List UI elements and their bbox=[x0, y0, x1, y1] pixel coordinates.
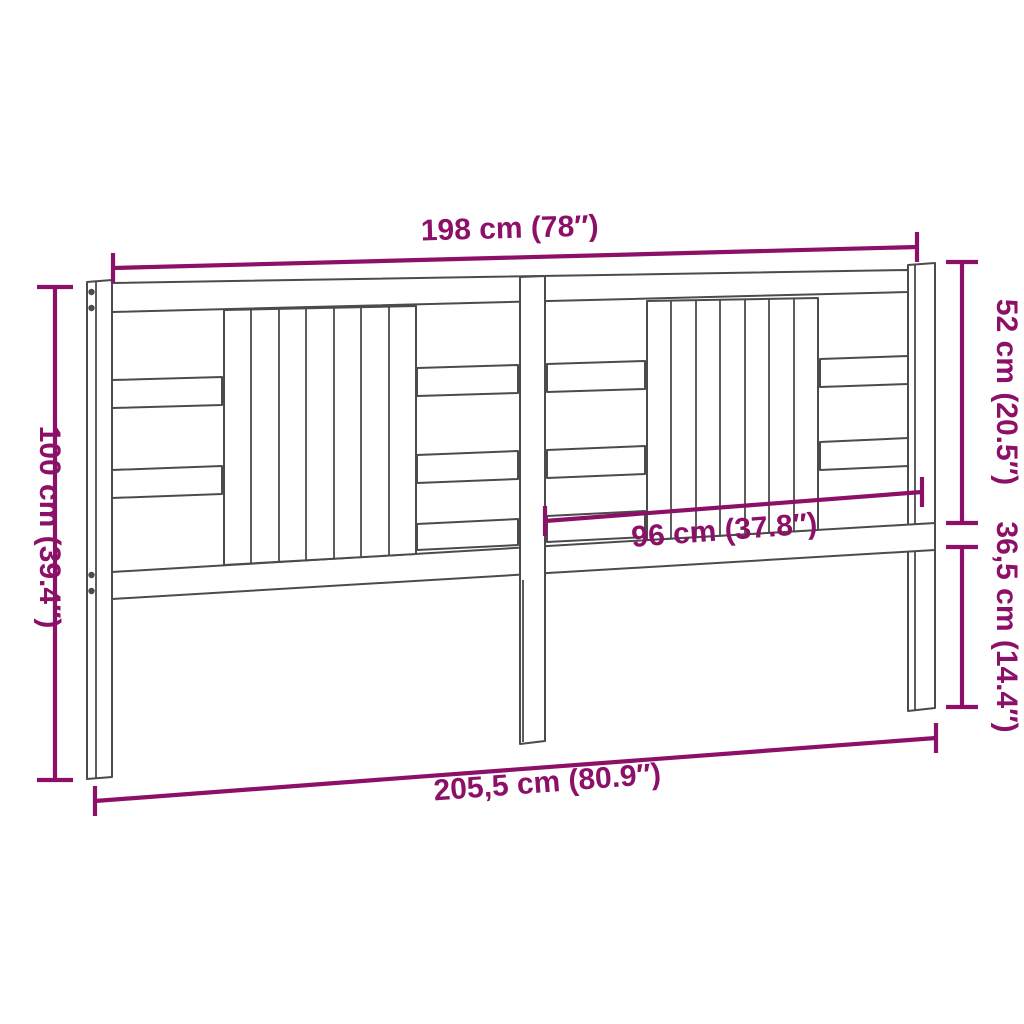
left-inner-slats bbox=[417, 365, 518, 550]
dimension-width-total: 205,5 cm (80.9″) bbox=[95, 723, 936, 816]
center-post bbox=[520, 276, 545, 744]
dimension-label-height-lower-right: 36,5 cm (14.4″) bbox=[990, 521, 1023, 732]
left-leg-body bbox=[87, 280, 112, 779]
slat bbox=[417, 451, 518, 483]
slat bbox=[547, 361, 645, 392]
slat bbox=[820, 438, 908, 470]
slat bbox=[547, 446, 645, 478]
screw-hole bbox=[88, 588, 94, 594]
screw-hole bbox=[88, 572, 94, 578]
screw-hole bbox=[88, 305, 94, 311]
dimension-label-width-top: 198 cm (78″) bbox=[420, 210, 599, 248]
dimension-height-upper-right: 52 cm (20.5″) bbox=[946, 262, 1023, 523]
dimension-label-height-left: 100 cm (39.4″) bbox=[33, 426, 66, 629]
baluster-block bbox=[224, 306, 416, 565]
right-outer-slats bbox=[820, 356, 908, 470]
dimension-line bbox=[113, 247, 917, 268]
dimension-height-lower-right: 36,5 cm (14.4″) bbox=[946, 521, 1023, 732]
dimension-label-width-total: 205,5 cm (80.9″) bbox=[432, 758, 662, 808]
slat bbox=[112, 377, 222, 408]
slat bbox=[112, 466, 222, 498]
left-outer-slats bbox=[112, 377, 222, 498]
dimension-label-height-upper-right: 52 cm (20.5″) bbox=[990, 299, 1023, 485]
dimension-height-left: 100 cm (39.4″) bbox=[33, 287, 73, 780]
left-baluster-panel bbox=[224, 306, 416, 565]
slat bbox=[417, 365, 518, 396]
slat bbox=[417, 519, 518, 550]
headboard-dimension-diagram: 198 cm (78″) 100 cm (39.4″) 52 cm (20.5″… bbox=[0, 0, 1024, 1024]
left-leg bbox=[87, 280, 112, 779]
screw-hole bbox=[88, 289, 94, 295]
diagram-canvas: 198 cm (78″) 100 cm (39.4″) 52 cm (20.5″… bbox=[0, 0, 1024, 1024]
slat bbox=[820, 356, 908, 387]
